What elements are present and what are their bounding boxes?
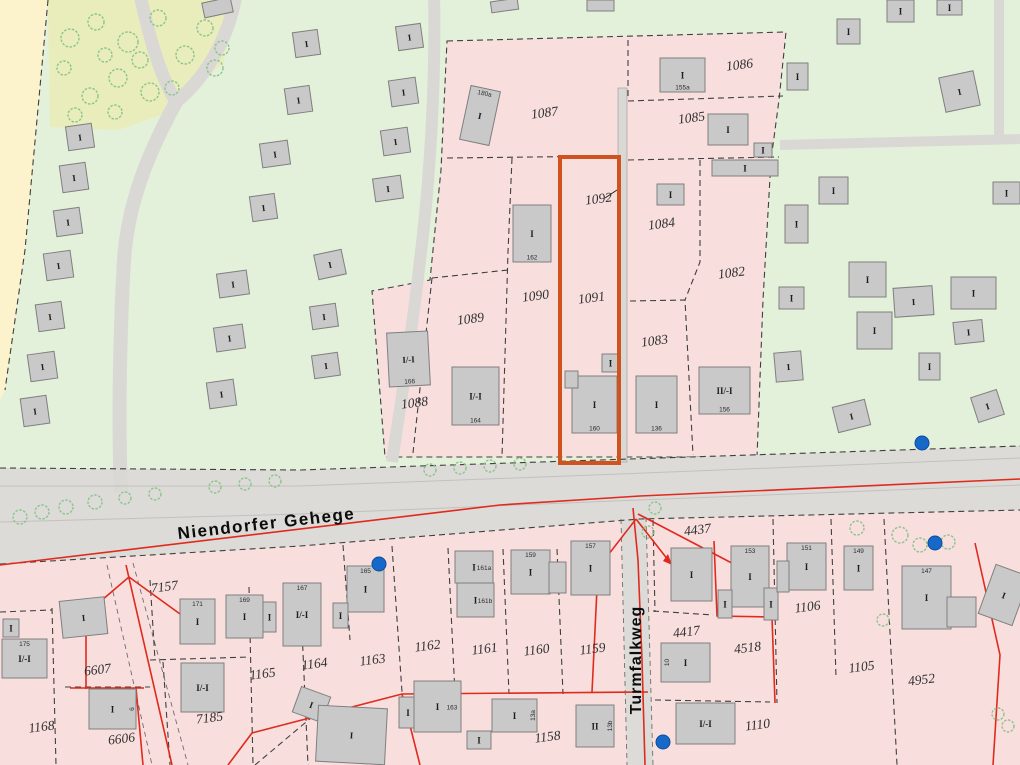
building-storeys-label: I — [243, 612, 247, 622]
building-storeys-label: I — [847, 27, 851, 37]
building: II/-I156 — [699, 367, 750, 414]
building-storeys-label: I — [795, 220, 799, 230]
building: I/-I — [181, 663, 224, 712]
building-storeys-label: I — [655, 400, 659, 410]
building-footprint — [947, 597, 976, 627]
building: I — [764, 588, 778, 620]
building — [947, 597, 976, 627]
building: I — [602, 354, 619, 372]
building: I — [380, 127, 410, 156]
building-storeys-label: I — [436, 702, 440, 712]
building-number: 171 — [192, 601, 203, 608]
building: I — [59, 597, 108, 639]
building: I — [893, 286, 934, 318]
building: I — [312, 352, 341, 378]
building: I — [213, 324, 245, 352]
building-number: 164 — [470, 418, 481, 425]
building: I — [467, 731, 491, 749]
building-storeys-label: I — [593, 400, 597, 410]
building: I — [849, 262, 886, 297]
building: I160 — [572, 376, 617, 433]
building-storeys-label: I — [723, 600, 727, 610]
building: I159 — [511, 550, 550, 594]
building: I — [53, 207, 82, 236]
building: I165 — [347, 566, 384, 612]
building-number: 6 — [129, 707, 136, 711]
parcel-label[interactable]: 1106 — [794, 597, 822, 615]
point-marker[interactable] — [656, 735, 670, 749]
building-number: 166 — [404, 378, 416, 386]
building: I — [787, 63, 808, 90]
building: I — [819, 177, 848, 204]
building-storeys-label: I — [899, 7, 903, 17]
building: I — [993, 182, 1020, 204]
building: I — [754, 143, 772, 157]
point-marker[interactable] — [928, 536, 942, 550]
building-number: 13b — [607, 720, 614, 731]
building: I161a — [455, 551, 493, 583]
building: I — [708, 114, 748, 145]
parcel-label[interactable]: 1165 — [249, 664, 277, 682]
building: I/-I — [676, 703, 735, 744]
building: I171 — [180, 599, 215, 644]
building: I — [671, 548, 712, 601]
building-storeys-label: I — [669, 190, 673, 200]
building-number: 160 — [589, 426, 600, 433]
parcel-label[interactable]: 1160 — [523, 640, 551, 658]
building: I147 — [902, 566, 951, 629]
building-number: 136 — [651, 426, 662, 433]
building: I — [27, 351, 57, 381]
building: I — [774, 351, 803, 382]
building-storeys-label: I — [529, 568, 533, 578]
building-number: 156 — [719, 407, 730, 414]
building: I — [779, 287, 804, 309]
building: I — [712, 160, 778, 176]
building-storeys-label: I — [805, 562, 809, 572]
building: I — [953, 320, 984, 345]
building: I — [887, 0, 914, 22]
building: I — [316, 705, 388, 765]
building: I — [259, 140, 290, 168]
building-number: 161b — [478, 598, 493, 605]
building-number: 157 — [585, 543, 596, 550]
building: I6 — [89, 689, 136, 729]
building-storeys-label: I — [684, 658, 688, 668]
building-storeys-label: I — [513, 711, 517, 721]
building-storeys-label: I — [796, 72, 800, 82]
building: I — [206, 379, 236, 409]
building: I161b — [457, 583, 494, 617]
cadastral-map-viewport: I180aI162I/-I164I/-I166I155aIIIII160II13… — [0, 0, 1020, 765]
building: I — [43, 250, 73, 280]
building: I — [216, 270, 249, 298]
building: I — [951, 277, 996, 309]
building-storeys-label: I — [857, 564, 861, 574]
building-storeys-label: I — [726, 125, 730, 135]
building: I — [249, 193, 277, 221]
building: I — [310, 303, 339, 329]
building-number: 162 — [527, 255, 538, 262]
building-number: 155a — [675, 85, 690, 92]
footpath-east-horizontal — [780, 139, 1020, 145]
building-number: 165 — [360, 568, 371, 575]
building: I — [388, 77, 418, 107]
building-storeys-label: I — [196, 617, 200, 627]
building-storeys-label: I — [609, 359, 613, 369]
building-storeys-label: I — [9, 624, 13, 634]
building-number: 147 — [921, 568, 932, 575]
building-storeys-label: I — [761, 146, 765, 156]
building-footprint — [777, 561, 789, 592]
building-storeys-label: I — [832, 186, 836, 196]
building: I — [333, 603, 348, 628]
parcel-label[interactable]: 1164 — [301, 654, 329, 672]
building-storeys-label: I/-I — [402, 354, 416, 365]
building-number: 161a — [477, 565, 492, 572]
point-marker[interactable] — [372, 557, 386, 571]
building-storeys-label: II — [591, 722, 599, 732]
building: I — [373, 175, 404, 202]
building: I10 — [661, 643, 710, 682]
building: I — [314, 249, 347, 279]
building-storeys-label: I — [743, 164, 747, 174]
building — [777, 561, 789, 592]
building: I162 — [513, 205, 551, 262]
building: I157 — [571, 541, 610, 595]
building: I — [657, 184, 684, 205]
building: I — [263, 602, 276, 632]
parcel-label[interactable]: 1159 — [579, 639, 607, 657]
building-storeys-label: I — [769, 600, 773, 610]
building: I — [718, 590, 732, 618]
cadastral-map[interactable]: I180aI162I/-I164I/-I166I155aIIIII160II13… — [0, 0, 1020, 765]
building-footprint — [587, 0, 614, 11]
building: I169 — [226, 595, 263, 638]
building: I — [3, 619, 19, 637]
building: I13a — [492, 699, 537, 732]
building-storeys-label: I — [748, 572, 752, 582]
building: I136 — [636, 376, 677, 433]
building-storeys-label: I/-I — [18, 654, 31, 664]
building-storeys-label: I — [866, 275, 870, 285]
building: I — [20, 395, 50, 426]
building-storeys-label: I — [339, 611, 343, 621]
building-storeys-label: I — [690, 570, 694, 580]
building-storeys-label: I — [972, 289, 976, 299]
building — [565, 371, 578, 388]
building-storeys-label: I — [530, 229, 534, 239]
building-storeys-label: I — [948, 3, 952, 13]
building: I — [785, 205, 808, 243]
parcel-label[interactable]: 1161 — [471, 640, 499, 658]
building — [549, 562, 566, 593]
building-storeys-label: I/-I — [699, 719, 712, 729]
building: I153 — [731, 546, 769, 607]
building: II13b — [576, 705, 614, 747]
building: I — [857, 312, 892, 349]
building-number: 169 — [239, 597, 250, 604]
building-number: 149 — [853, 548, 864, 555]
building: I155a — [660, 58, 705, 92]
building: I151 — [787, 543, 826, 590]
building-storeys-label: I — [268, 613, 272, 623]
building-number: 175 — [19, 641, 30, 648]
building-storeys-label: I — [681, 71, 685, 81]
building-storeys-label: I — [406, 708, 410, 718]
building-storeys-label: I — [873, 326, 877, 336]
building: I/-I166 — [387, 331, 431, 387]
building-storeys-label: I — [925, 593, 929, 603]
building-storeys-label: I — [790, 294, 794, 304]
parcel-label[interactable]: 1158 — [534, 727, 562, 745]
building-storeys-label: I — [111, 705, 115, 715]
building: I — [35, 301, 65, 331]
building: I — [65, 123, 94, 150]
building-storeys-label: I — [472, 563, 476, 573]
building-number: 153 — [745, 548, 756, 555]
building-storeys-label: I/-I — [469, 392, 482, 402]
building — [587, 0, 614, 11]
building-storeys-label: I — [477, 736, 481, 746]
building-footprint — [565, 371, 578, 388]
building-footprint — [549, 562, 566, 593]
building: I — [59, 162, 89, 192]
building: I — [937, 0, 962, 15]
building: I — [292, 29, 320, 57]
parcel-label[interactable]: 1110 — [744, 716, 771, 734]
building-number: 167 — [297, 585, 308, 592]
building-storeys-label: I/-I — [196, 683, 209, 693]
building-number: 151 — [801, 545, 812, 552]
building: I — [284, 85, 312, 114]
building-storeys-label: I — [364, 585, 368, 595]
building-storeys-label: I — [1005, 189, 1009, 199]
building-storeys-label: I — [589, 564, 593, 574]
parcel-label[interactable]: 1163 — [359, 650, 387, 668]
building-number: 10 — [664, 659, 671, 667]
parcel-label[interactable]: 1168 — [28, 717, 56, 735]
building-number: 159 — [525, 552, 536, 559]
building-number: 13a — [530, 710, 537, 721]
building: I — [939, 71, 981, 113]
building: I163 — [414, 681, 461, 732]
building-storeys-label: II/-I — [716, 386, 733, 396]
building: I/-I167 — [283, 583, 321, 646]
building-storeys-label: I/-I — [296, 610, 309, 620]
building: I — [395, 23, 423, 50]
building: I/-I164 — [452, 367, 499, 425]
building: I/-I175 — [2, 639, 47, 678]
point-marker[interactable] — [915, 436, 929, 450]
parcel-label[interactable]: 1162 — [414, 636, 442, 654]
building: I — [837, 19, 860, 44]
building-storeys-label: I — [928, 362, 932, 372]
building: I149 — [844, 546, 873, 590]
building: I — [919, 353, 940, 380]
street-label-turmfalkweg: Turmfalkweg — [628, 606, 645, 715]
parcel-label[interactable]: 1105 — [848, 657, 876, 675]
building-number: 163 — [447, 705, 458, 712]
